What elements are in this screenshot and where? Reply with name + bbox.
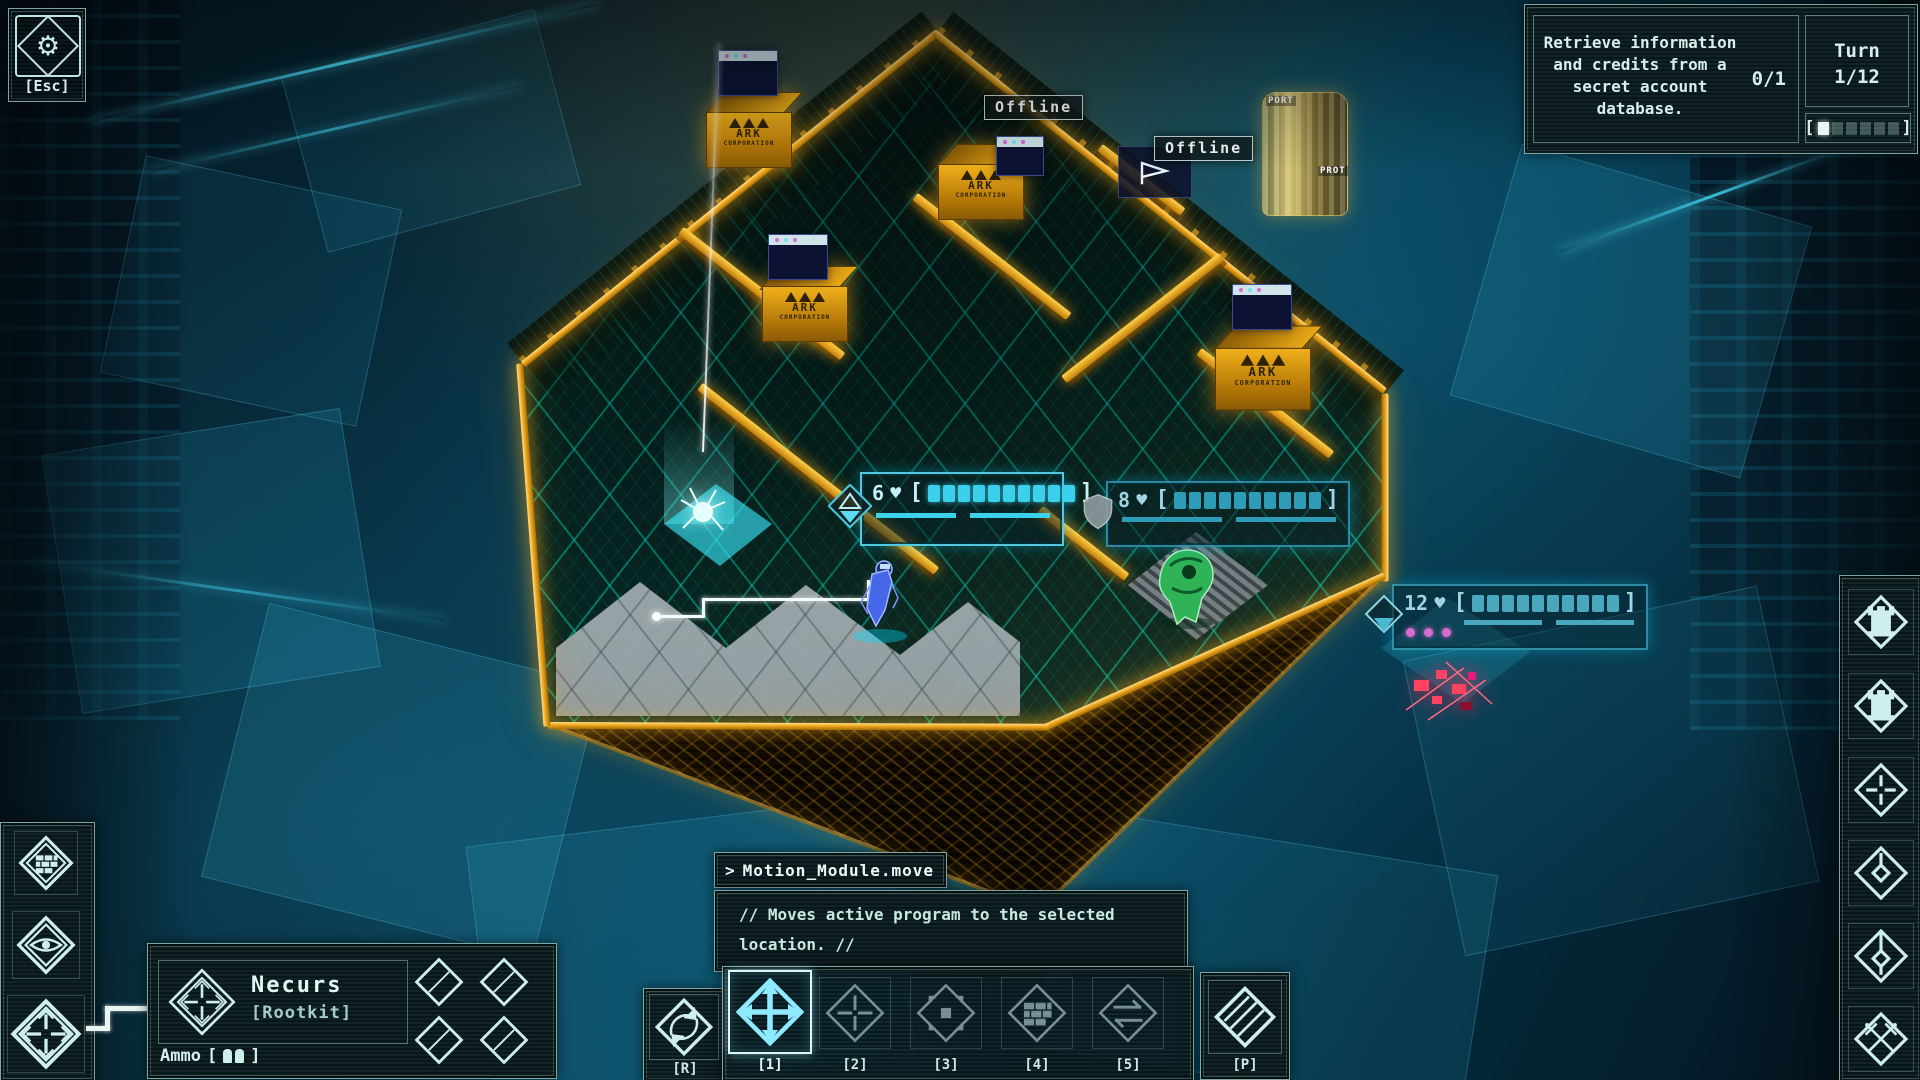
hp-value: 8 — [1118, 488, 1130, 512]
block — [1860, 122, 1871, 135]
tool-button-attack[interactable] — [1848, 1006, 1914, 1072]
heart-icon: ♥ — [1433, 594, 1446, 612]
command-description: // Moves active program to the selected … — [714, 890, 1188, 972]
status-dots — [1406, 628, 1451, 637]
server-box — [768, 234, 828, 280]
gear-icon: ⚙ — [36, 31, 60, 62]
tool-button-node-long[interactable] — [1848, 923, 1914, 989]
enemy-program-green[interactable] — [1152, 544, 1222, 630]
block — [1888, 122, 1899, 135]
tool-button-target[interactable] — [1848, 757, 1914, 823]
health-bar: 8♥ [ ] — [1106, 481, 1350, 547]
block — [943, 485, 955, 502]
diamond-badge-icon — [1362, 592, 1406, 638]
block — [1018, 485, 1030, 502]
right-tool-panel — [1839, 575, 1920, 1080]
bracket: ] — [250, 1046, 260, 1066]
description-line: location. // — [739, 935, 855, 954]
bracket: [ — [1804, 118, 1814, 138]
ammo-row: Ammo [ ] — [160, 1046, 260, 1066]
ark-node[interactable]: ARK CORPORATION — [706, 92, 792, 168]
block — [1189, 492, 1201, 509]
empty-slot-icon — [478, 1014, 530, 1066]
block — [928, 485, 940, 502]
status-line — [1464, 620, 1542, 625]
block — [1204, 492, 1216, 509]
target-diamond-icon — [1852, 761, 1910, 819]
hotkey-label: [R] — [644, 1061, 726, 1077]
tower-diamond-icon — [1852, 593, 1910, 651]
block — [1279, 492, 1291, 509]
ability-button-pass[interactable] — [1208, 980, 1282, 1054]
bracket: [ — [910, 484, 923, 502]
ability-button-2[interactable] — [819, 977, 891, 1049]
status-line — [876, 513, 956, 518]
tool-button-eye[interactable] — [12, 911, 80, 979]
block — [973, 485, 985, 502]
command-name: Motion_Module.move — [743, 861, 934, 880]
shield-badge-icon — [1078, 491, 1118, 533]
block — [1532, 595, 1544, 612]
program-crosshair-icon — [167, 967, 237, 1037]
turn-progress: [ ] — [1805, 113, 1911, 143]
tool-button-firewall[interactable] — [14, 831, 78, 895]
firewall-diamond-icon — [18, 835, 74, 891]
block — [1562, 595, 1574, 612]
block — [1294, 492, 1306, 509]
mission-panel: Retrieve information and credits from a … — [1524, 4, 1918, 154]
ammo-blocks — [223, 1049, 244, 1063]
turn-progress-blocks — [1818, 122, 1899, 135]
program-slot-empty[interactable] — [413, 1014, 465, 1066]
hotkey-label: [5] — [1092, 1057, 1164, 1073]
hotkey-label: [P] — [1201, 1057, 1289, 1073]
program-type: [Rootkit] — [251, 1003, 352, 1023]
tool-button-tower2[interactable] — [1848, 673, 1914, 739]
server-box — [996, 136, 1044, 176]
turn-value: 1/12 — [1806, 64, 1908, 90]
objective-counter: 0/1 — [1752, 68, 1786, 90]
bracket: [ — [1454, 594, 1467, 612]
block — [988, 485, 1000, 502]
program-slot-empty[interactable] — [478, 956, 530, 1008]
command-tooltip: > Motion_Module.move — [714, 852, 947, 888]
health-bar: 12♥ [ ] — [1392, 584, 1648, 650]
heart-icon: ♥ — [1135, 491, 1148, 509]
ark-name: ARK — [1216, 366, 1310, 379]
server-box — [1232, 284, 1292, 330]
block — [223, 1049, 232, 1063]
flag-arrow-icon — [1138, 157, 1172, 187]
tool-button-node[interactable] — [1848, 840, 1914, 906]
prompt-icon: > — [725, 861, 735, 880]
connector-wire — [105, 1006, 149, 1011]
status-line — [1122, 517, 1222, 522]
hp-value: 6 — [872, 481, 884, 505]
tower-diamond-icon — [1852, 677, 1910, 735]
program-panel: Necurs [Rootkit] Ammo [ ] — [147, 943, 557, 1079]
empty-slot-icon — [413, 1014, 465, 1066]
block — [1517, 595, 1529, 612]
bracket: ] — [1902, 118, 1912, 138]
ark-node-face: ARK CORPORATION — [1215, 348, 1311, 411]
tool-button-tower[interactable] — [1848, 589, 1914, 655]
block — [1502, 595, 1514, 612]
block — [1003, 485, 1015, 502]
offline-tag: Offline — [984, 95, 1083, 120]
cube-rim — [1382, 394, 1389, 582]
block — [1174, 492, 1186, 509]
block — [1234, 492, 1246, 509]
hp-blocks — [1174, 492, 1321, 509]
block — [1264, 492, 1276, 509]
status-line — [1556, 620, 1634, 625]
block — [1472, 595, 1484, 612]
block — [1607, 595, 1619, 612]
hotkey-label: [4] — [1001, 1057, 1073, 1073]
block — [1219, 492, 1231, 509]
block — [1846, 122, 1857, 135]
hp-blocks — [928, 485, 1075, 502]
ark-node-face: ARK CORPORATION — [706, 112, 792, 168]
ability-button-move[interactable] — [728, 970, 812, 1054]
block — [1874, 122, 1885, 135]
path-segment — [702, 598, 870, 601]
hotkey-label: [3] — [910, 1057, 982, 1073]
block — [1249, 492, 1261, 509]
block — [235, 1049, 244, 1063]
bracket: [ — [207, 1046, 217, 1066]
port-label: PORT — [1266, 96, 1296, 106]
path-segment — [702, 598, 705, 618]
ark-sub: CORPORATION — [707, 140, 791, 147]
ability-button-5[interactable] — [1092, 977, 1164, 1049]
refresh-button-panel: [R] — [643, 988, 727, 1080]
node-key-icon — [1852, 844, 1910, 902]
description-line: // Moves active program to the selected — [739, 905, 1115, 924]
ark-name: ARK — [707, 128, 791, 140]
ark-sub: CORPORATION — [763, 314, 847, 321]
objective-box: Retrieve information and credits from a … — [1533, 15, 1799, 143]
block — [1033, 485, 1045, 502]
ark-name: ARK — [939, 180, 1023, 192]
ability-button-4[interactable] — [1001, 977, 1073, 1049]
block — [1577, 595, 1589, 612]
block — [1547, 595, 1559, 612]
crosshair-diamond-icon — [10, 998, 82, 1070]
node-key-long-icon — [1852, 927, 1910, 985]
menu-hotkey-label: [Esc] — [9, 77, 85, 95]
empty-slot-icon — [478, 956, 530, 1008]
tool-button-crosshair[interactable] — [7, 995, 85, 1073]
block — [1048, 485, 1060, 502]
player-program-blue[interactable] — [851, 552, 909, 644]
data-cylinder — [1262, 92, 1348, 216]
block — [1487, 595, 1499, 612]
ark-node[interactable]: ARK CORPORATION — [1215, 325, 1311, 410]
block — [1592, 595, 1604, 612]
program-info-box: Necurs [Rootkit] — [158, 960, 408, 1044]
crossed-swords-icon — [1852, 1010, 1910, 1068]
ark-node-face: ARK CORPORATION — [762, 286, 848, 342]
ark-sub: CORPORATION — [939, 192, 1023, 199]
hotkey-label: [2] — [819, 1057, 891, 1073]
turn-label: Turn — [1806, 38, 1908, 64]
status-line — [970, 513, 1050, 518]
game-screen: ARK CORPORATION ARK CORPORATION ARK CORP… — [0, 0, 1920, 1080]
hp-value: 12 — [1404, 591, 1428, 615]
ammo-label: Ammo — [160, 1046, 201, 1066]
eye-diamond-icon — [16, 915, 76, 975]
ability-button-3[interactable] — [910, 977, 982, 1049]
block — [1818, 122, 1829, 135]
menu-button[interactable]: ⚙ [Esc] — [8, 8, 86, 102]
program-slot-empty[interactable] — [478, 1014, 530, 1066]
hotkey-label: [1] — [728, 1057, 812, 1073]
offline-tag: Offline — [1154, 136, 1253, 161]
objective-text: Retrieve information and credits from a … — [1540, 32, 1740, 120]
ark-name: ARK — [763, 302, 847, 314]
health-bar: 6♥ [ ] — [860, 472, 1064, 546]
hp-blocks — [1472, 595, 1619, 612]
status-line — [1236, 517, 1336, 522]
empty-slot-icon — [413, 956, 465, 1008]
program-slot-empty[interactable] — [413, 956, 465, 1008]
server-box — [718, 50, 778, 96]
bracket: ] — [1624, 594, 1637, 612]
left-tool-panel — [0, 822, 95, 1080]
program-name: Necurs — [251, 973, 342, 998]
spider-bot[interactable] — [668, 450, 738, 560]
ark-sub: CORPORATION — [1216, 379, 1310, 387]
ability-button-refresh[interactable] — [649, 994, 719, 1060]
block — [958, 485, 970, 502]
bracket: ] — [1326, 491, 1339, 509]
block — [1832, 122, 1843, 135]
heart-icon: ♥ — [889, 484, 902, 502]
block — [1063, 485, 1075, 502]
port-label: PROT — [1318, 166, 1348, 176]
pass-button-panel: [P] — [1200, 972, 1290, 1080]
bracket: [ — [1156, 491, 1169, 509]
triangles-badge-icon — [828, 484, 872, 528]
path-segment — [660, 615, 705, 618]
turn-box: Turn 1/12 — [1805, 15, 1909, 107]
block — [1309, 492, 1321, 509]
glitch-entity-red[interactable] — [1402, 646, 1502, 726]
ability-bar: [1] [2] [3] [4] — [722, 966, 1194, 1080]
menu-button-frame: ⚙ — [15, 15, 81, 77]
